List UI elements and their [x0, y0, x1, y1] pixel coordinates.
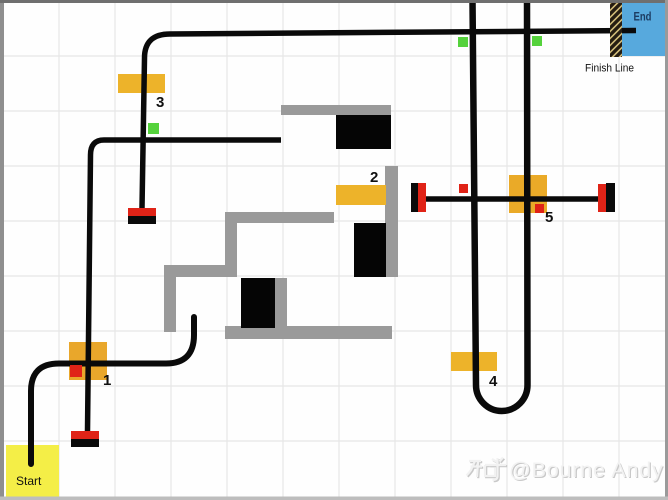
svg-text:End: End — [634, 12, 652, 24]
svg-text:3: 3 — [156, 94, 164, 111]
svg-text:2: 2 — [370, 169, 378, 186]
svg-text:5: 5 — [545, 209, 553, 226]
svg-text:4: 4 — [489, 373, 498, 390]
svg-text:1: 1 — [103, 372, 111, 389]
svg-text:@Bourne Andy: @Bourne Andy — [509, 458, 664, 482]
svg-text:Finish Line: Finish Line — [585, 63, 634, 75]
svg-text:Start: Start — [16, 474, 42, 488]
